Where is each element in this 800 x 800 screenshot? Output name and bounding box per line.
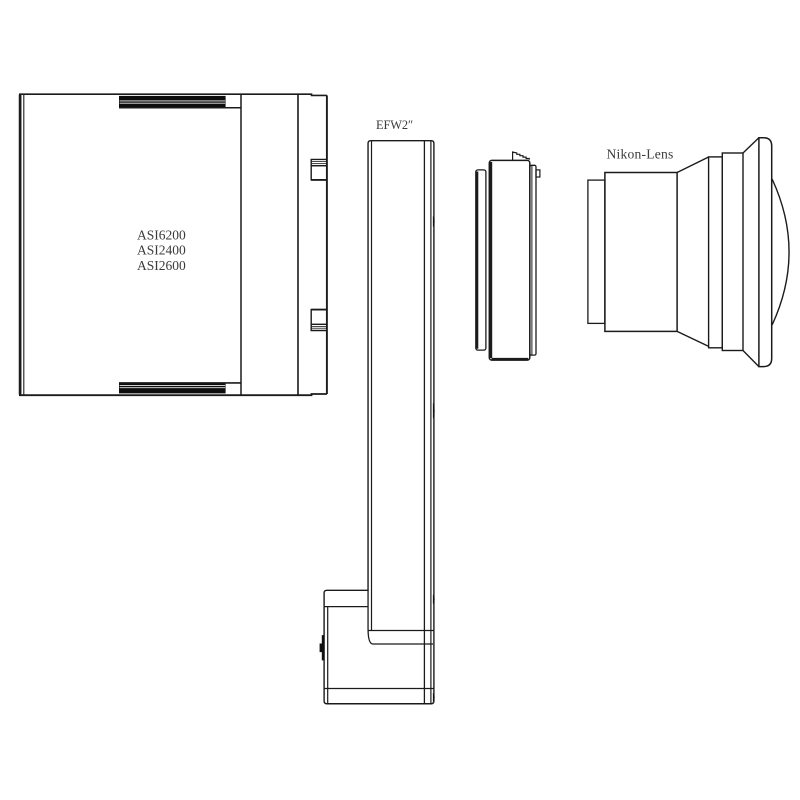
svg-text:EFW2″: EFW2″ xyxy=(376,118,413,132)
svg-text:Nikon-Lens: Nikon-Lens xyxy=(607,146,674,161)
svg-text:ASI6200: ASI6200 xyxy=(137,228,186,243)
svg-text:ASI2600: ASI2600 xyxy=(137,258,186,273)
svg-text:ASI2400: ASI2400 xyxy=(137,243,186,258)
